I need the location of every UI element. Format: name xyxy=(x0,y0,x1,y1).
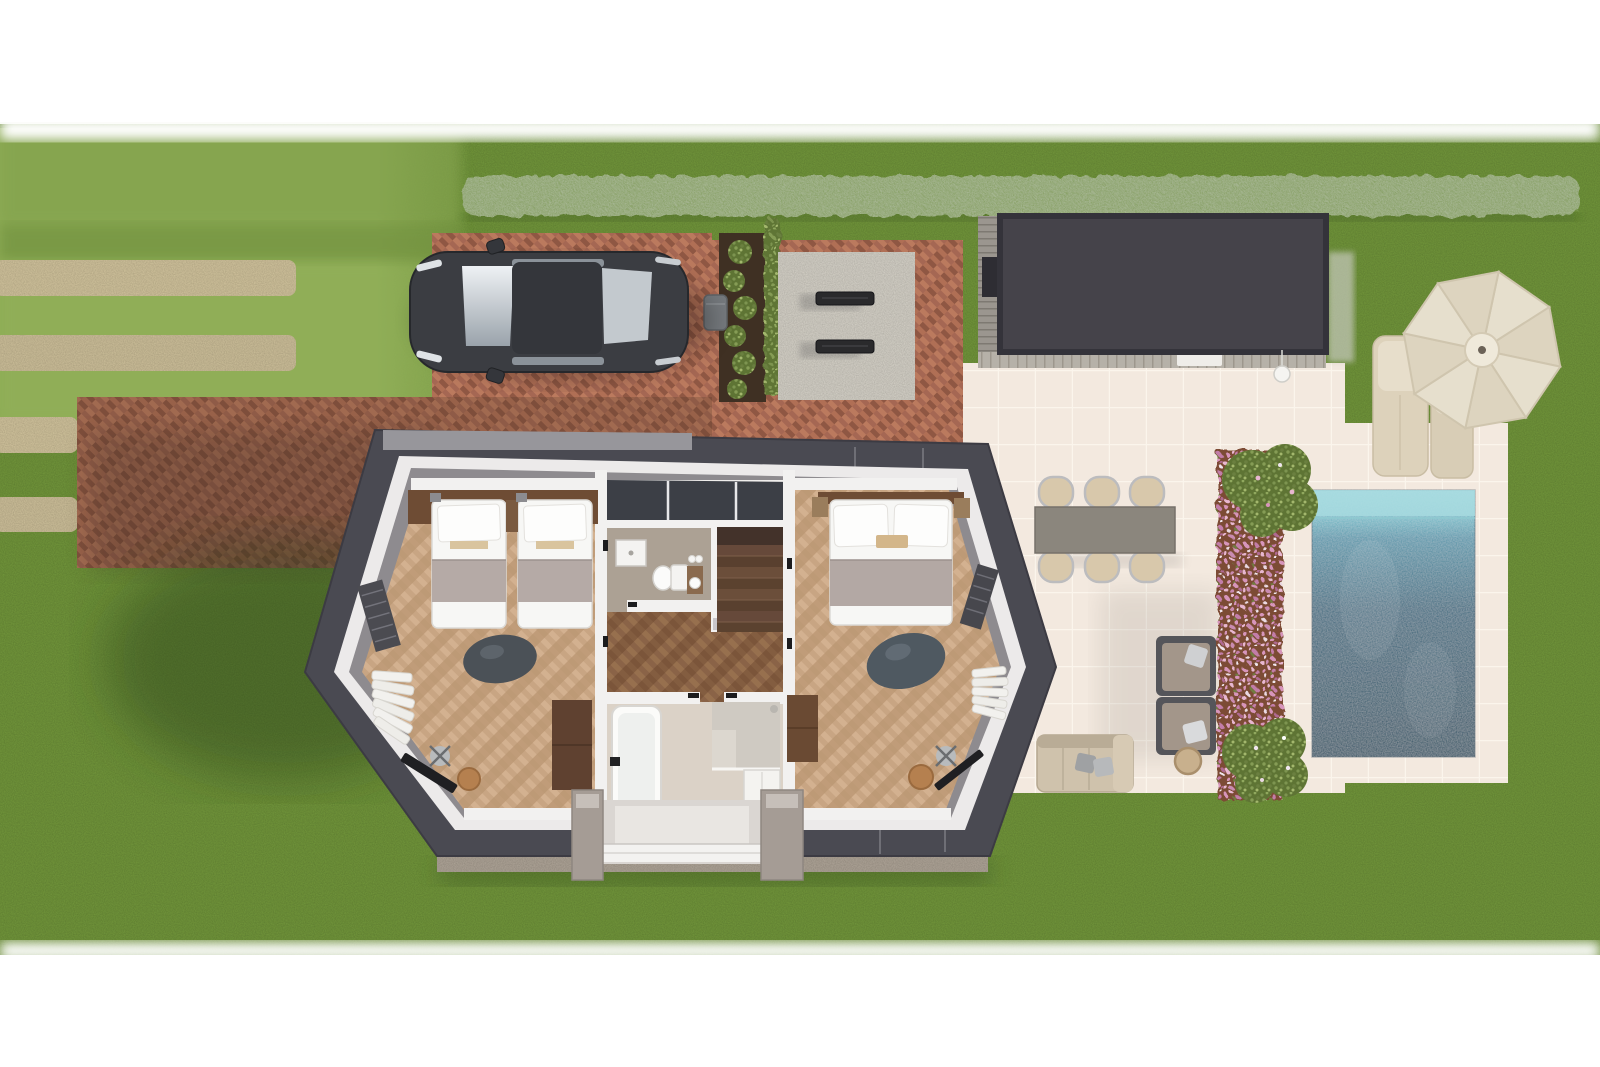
toilet-paper xyxy=(689,556,696,563)
garage-side-path xyxy=(1328,252,1354,362)
car-rear-window xyxy=(602,268,652,344)
wall-light xyxy=(516,493,527,502)
mow-stripe xyxy=(0,224,460,262)
solar-panels xyxy=(607,480,795,527)
fan-shutters xyxy=(972,666,1009,720)
roof-ridge xyxy=(383,430,692,450)
dining-set xyxy=(1035,477,1182,582)
stool xyxy=(909,765,933,789)
dining-table xyxy=(1035,507,1175,553)
garage xyxy=(978,216,1354,382)
garage-roof xyxy=(1000,216,1326,352)
mow-stripe xyxy=(0,128,460,226)
toilet-paper xyxy=(696,556,703,563)
garage-window xyxy=(982,257,999,297)
car-roof xyxy=(512,262,602,354)
bbq-pad xyxy=(778,252,915,400)
side-table xyxy=(1175,748,1201,774)
lounge-chairs xyxy=(1156,636,1216,755)
wall-light xyxy=(430,493,441,502)
double-bed xyxy=(830,500,952,625)
pool xyxy=(1312,490,1475,757)
car xyxy=(410,238,713,385)
car-side-glass xyxy=(512,357,604,365)
stool xyxy=(458,768,480,790)
shower-head xyxy=(770,705,778,713)
car-windshield xyxy=(462,266,514,346)
pool-steps xyxy=(1312,490,1475,516)
hedge xyxy=(462,176,1580,216)
single-bed xyxy=(518,500,592,628)
single-bed xyxy=(432,500,506,628)
shower-bench xyxy=(712,730,736,768)
house xyxy=(305,430,1056,880)
site-plan: Top-down 3D floor plan of a holiday home… xyxy=(0,0,1600,1067)
outdoor-lamp xyxy=(1274,366,1290,382)
bath-faucet xyxy=(610,757,620,766)
staircase xyxy=(717,527,783,632)
garden-sofa xyxy=(1037,735,1133,792)
nightstand xyxy=(812,497,828,517)
cushion xyxy=(1093,756,1115,777)
nightstand xyxy=(506,500,518,532)
floorplan-rendering: Top-down 3D floor plan of a holiday home… xyxy=(0,0,1600,1067)
nightstand xyxy=(954,498,970,518)
toilet xyxy=(653,566,673,590)
